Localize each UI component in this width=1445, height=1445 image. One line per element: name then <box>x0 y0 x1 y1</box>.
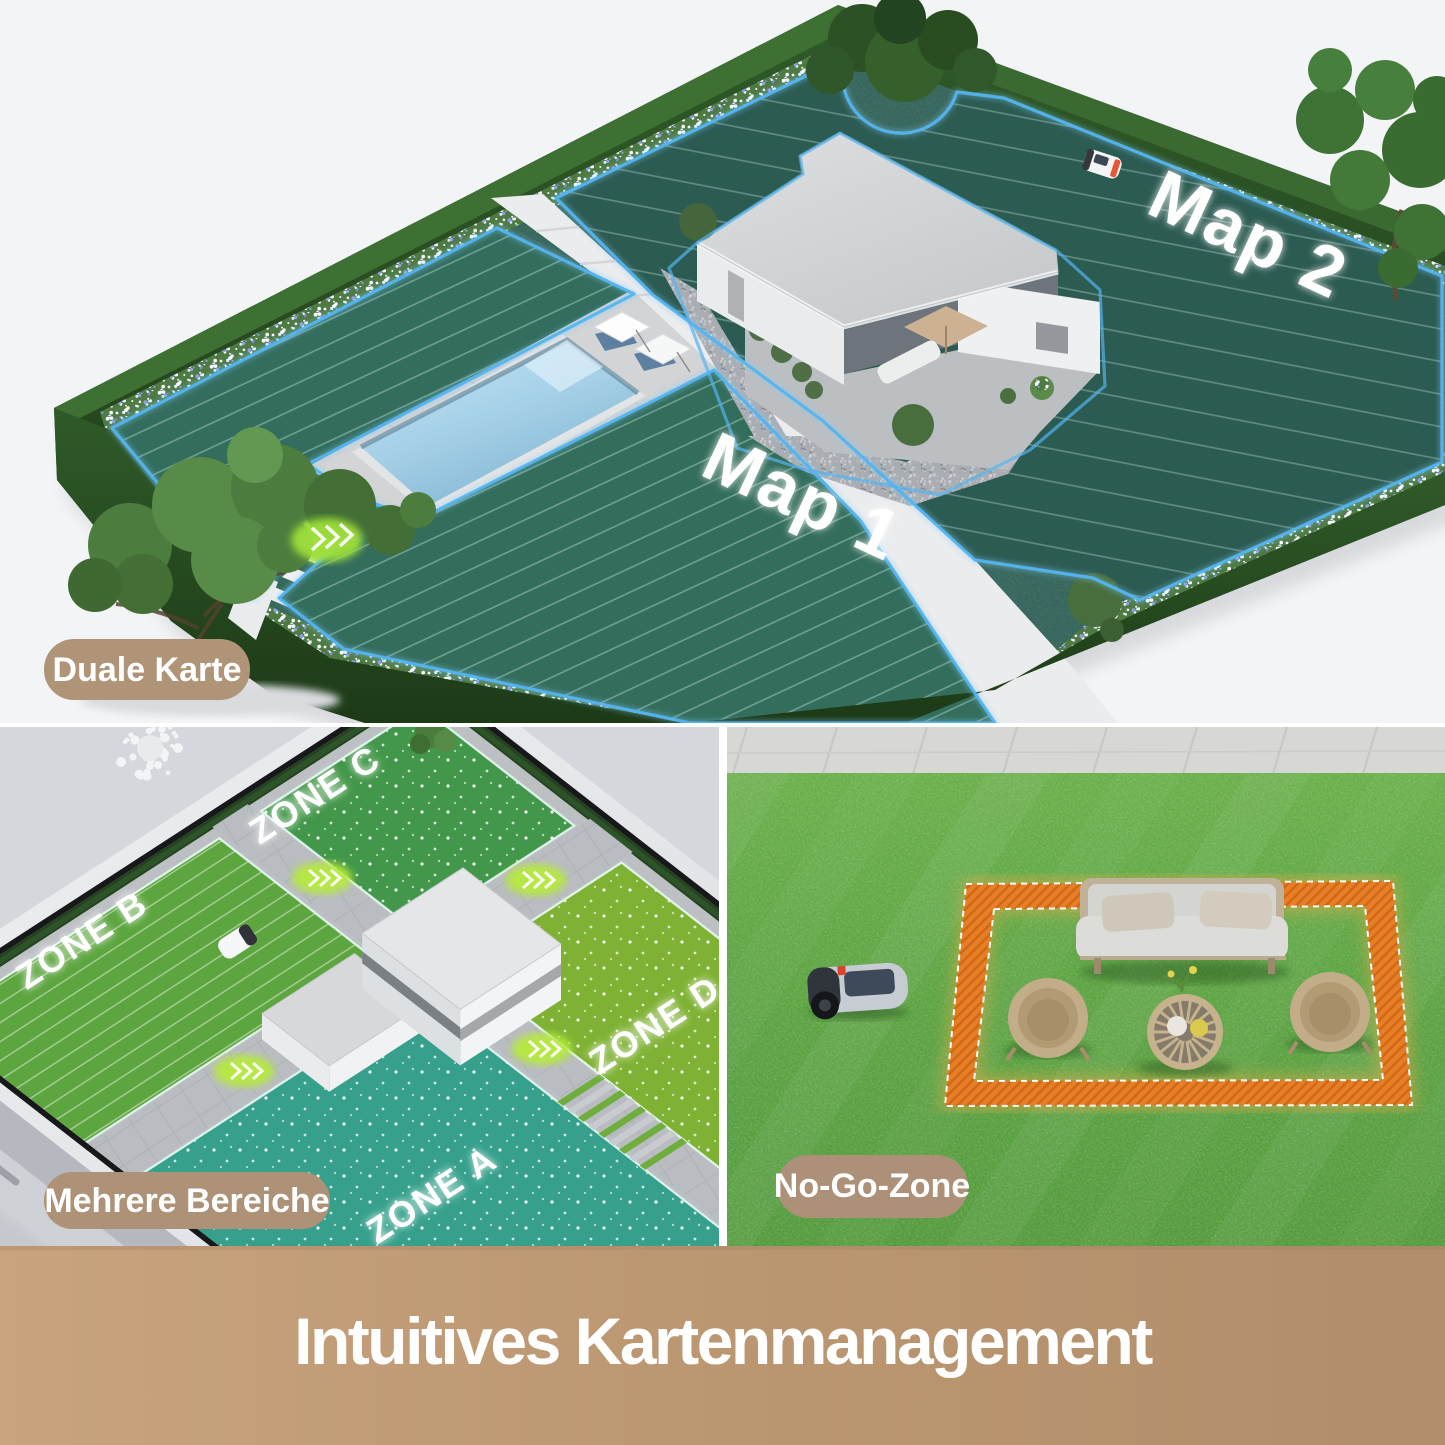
svg-text:Duale Karte: Duale Karte <box>53 651 242 689</box>
svg-text:Mehrere Bereiche: Mehrere Bereiche <box>44 1182 329 1220</box>
svg-text:Intuitives Kartenmanagement: Intuitives Kartenmanagement <box>294 1304 1153 1378</box>
svg-text:No-Go-Zone: No-Go-Zone <box>774 1167 970 1205</box>
